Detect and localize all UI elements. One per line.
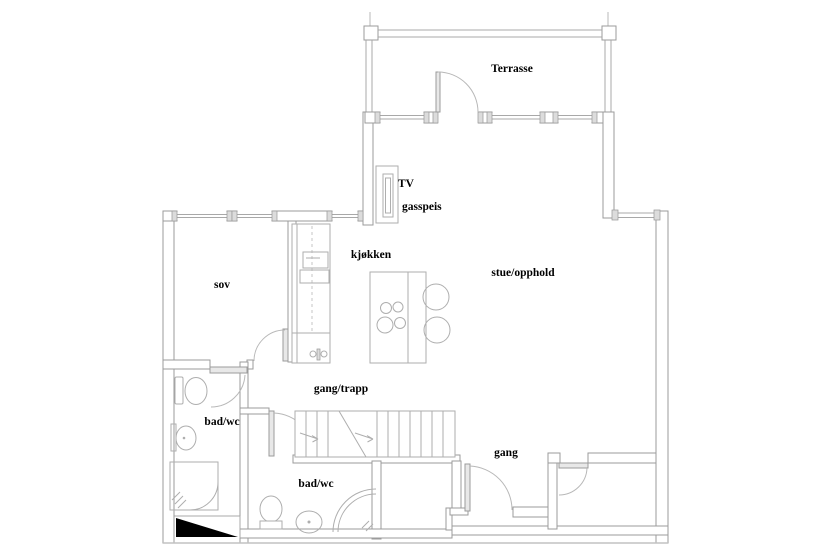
wall-closet-right (452, 461, 461, 510)
door-swing-arc (254, 330, 285, 361)
terrace-railing-top (378, 30, 602, 37)
label-gang: gang (494, 447, 518, 459)
stool-symbol (424, 317, 450, 343)
wall-livingroom-left (363, 112, 373, 225)
door-leaf (283, 329, 288, 361)
roof-tick-lines (370, 12, 608, 26)
window-terrace-1 (375, 112, 429, 123)
label-gang-trapp: gang/trapp (314, 383, 368, 395)
bathroom-lower-fixtures (260, 489, 376, 533)
window-bedroom (172, 211, 232, 221)
label-sov: sov (214, 279, 230, 291)
toilet-symbol (260, 496, 282, 529)
wall-storeroom-top-a (548, 453, 560, 463)
staircase (295, 411, 455, 457)
wall-storeroom-top-b (588, 453, 656, 463)
window-terrace-3 (553, 112, 597, 123)
door-swing-arc (438, 72, 478, 112)
door-leaf (559, 463, 588, 468)
window-terrace-2 (487, 112, 545, 123)
wall-top-left-c (272, 211, 332, 221)
label-tv: TV (398, 178, 415, 190)
wall-bath-lower-right (372, 461, 381, 539)
washbasin-symbol (171, 424, 196, 451)
label-kjokken: kjøkken (351, 249, 392, 261)
stool-symbol (423, 284, 449, 310)
kitchen-counter (292, 224, 330, 363)
label-gasspeis: gasspeis (402, 201, 442, 213)
door-leaf (210, 367, 247, 373)
label-bad-wc-lower: bad/wc (298, 478, 333, 490)
wall-hall-partition (240, 408, 269, 414)
wall-bottom-right (452, 526, 668, 535)
door-leaf (436, 72, 440, 112)
terrace-post-left (364, 26, 378, 40)
ramp-nook (174, 516, 240, 538)
terrace-post-right (602, 26, 616, 40)
window-bedroom-2 (232, 211, 277, 221)
wall-livingroom-right (603, 112, 614, 218)
wall-bedroom-bottom-a (163, 360, 210, 369)
floor-plan: Terrasse TV gasspeis kjøkken sov stue/op… (0, 0, 831, 555)
door-entrance (465, 464, 512, 511)
floor-plan-drawing: Terrasse TV gasspeis kjøkken sov stue/op… (0, 0, 831, 555)
label-terrasse: Terrasse (491, 63, 533, 75)
exterior-wall-left (163, 211, 174, 543)
window-kitchen (327, 211, 363, 221)
label-bad-wc-upper: bad/wc (204, 416, 239, 428)
wall-bottom-middle (240, 529, 452, 538)
door-bedroom (254, 329, 288, 361)
door-swing-arc (559, 468, 587, 495)
label-stue-opphold: stue/opphold (491, 267, 555, 279)
shower-symbol (170, 462, 218, 510)
door-storeroom (559, 463, 588, 495)
door-leaf (465, 464, 470, 511)
terrace-railing-right (605, 40, 611, 112)
door-terrace (433, 72, 483, 124)
kitchen-island (370, 272, 450, 363)
door-leaf (269, 411, 274, 456)
wall-storeroom-left (548, 457, 557, 529)
door-swing-arc (470, 466, 512, 510)
terrace-railing-left (366, 40, 372, 112)
exterior-wall-right (656, 211, 668, 543)
toilet-symbol (175, 377, 207, 405)
fireplace-tv-unit (376, 166, 398, 223)
shower-symbol (333, 489, 376, 532)
terrace-structure (364, 12, 616, 112)
bathroom-upper-fixtures (170, 377, 218, 510)
ramp-symbol (176, 518, 238, 537)
window-northeast (612, 210, 660, 220)
